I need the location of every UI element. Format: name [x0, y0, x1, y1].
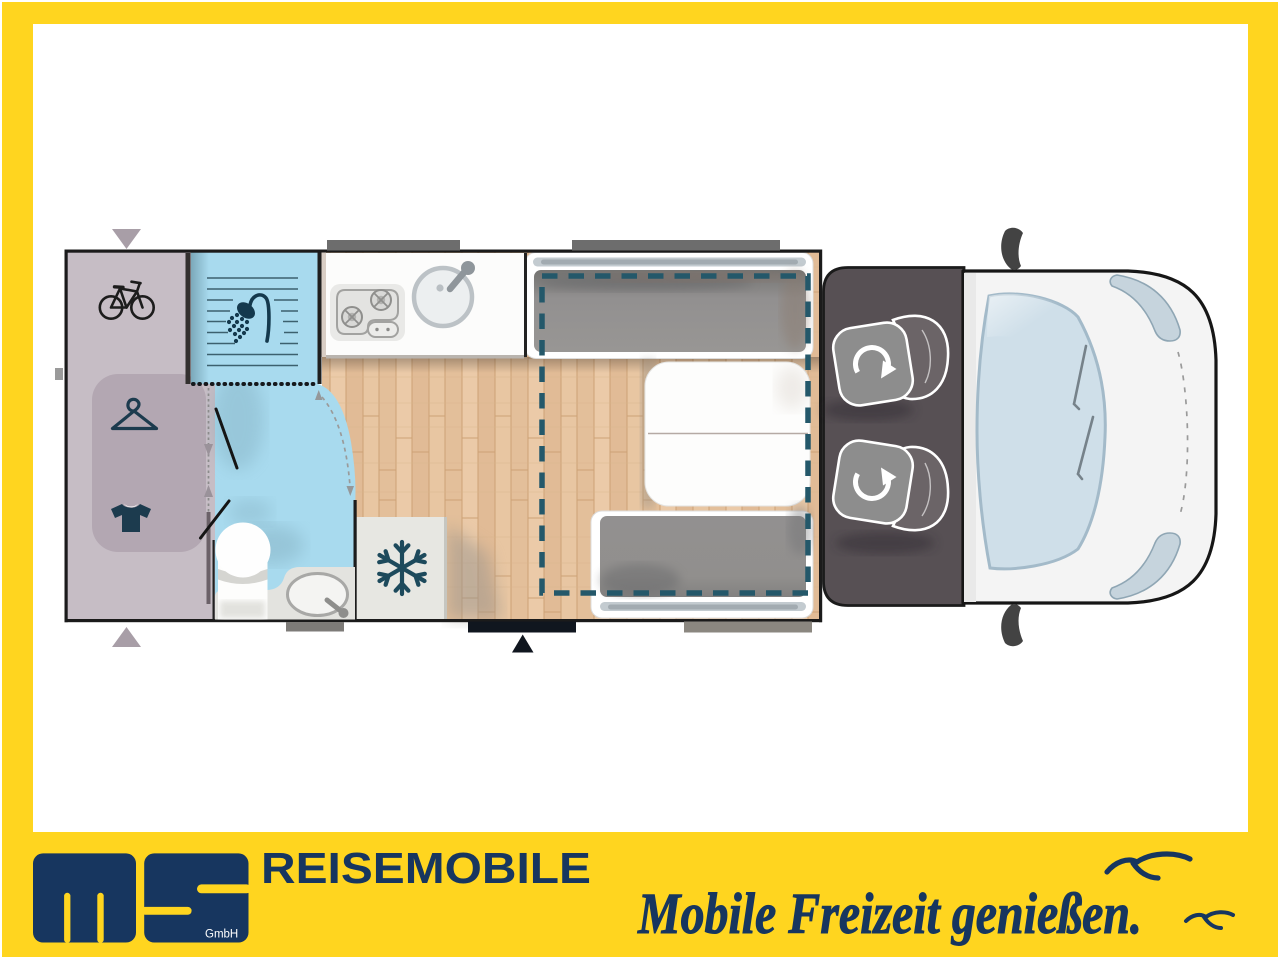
svg-text:REISEMOBILE: REISEMOBILE — [261, 844, 591, 893]
svg-text:GmbH: GmbH — [205, 929, 238, 941]
svg-text:Mobile Freizeit genießen.: Mobile Freizeit genießen. — [637, 881, 1142, 946]
